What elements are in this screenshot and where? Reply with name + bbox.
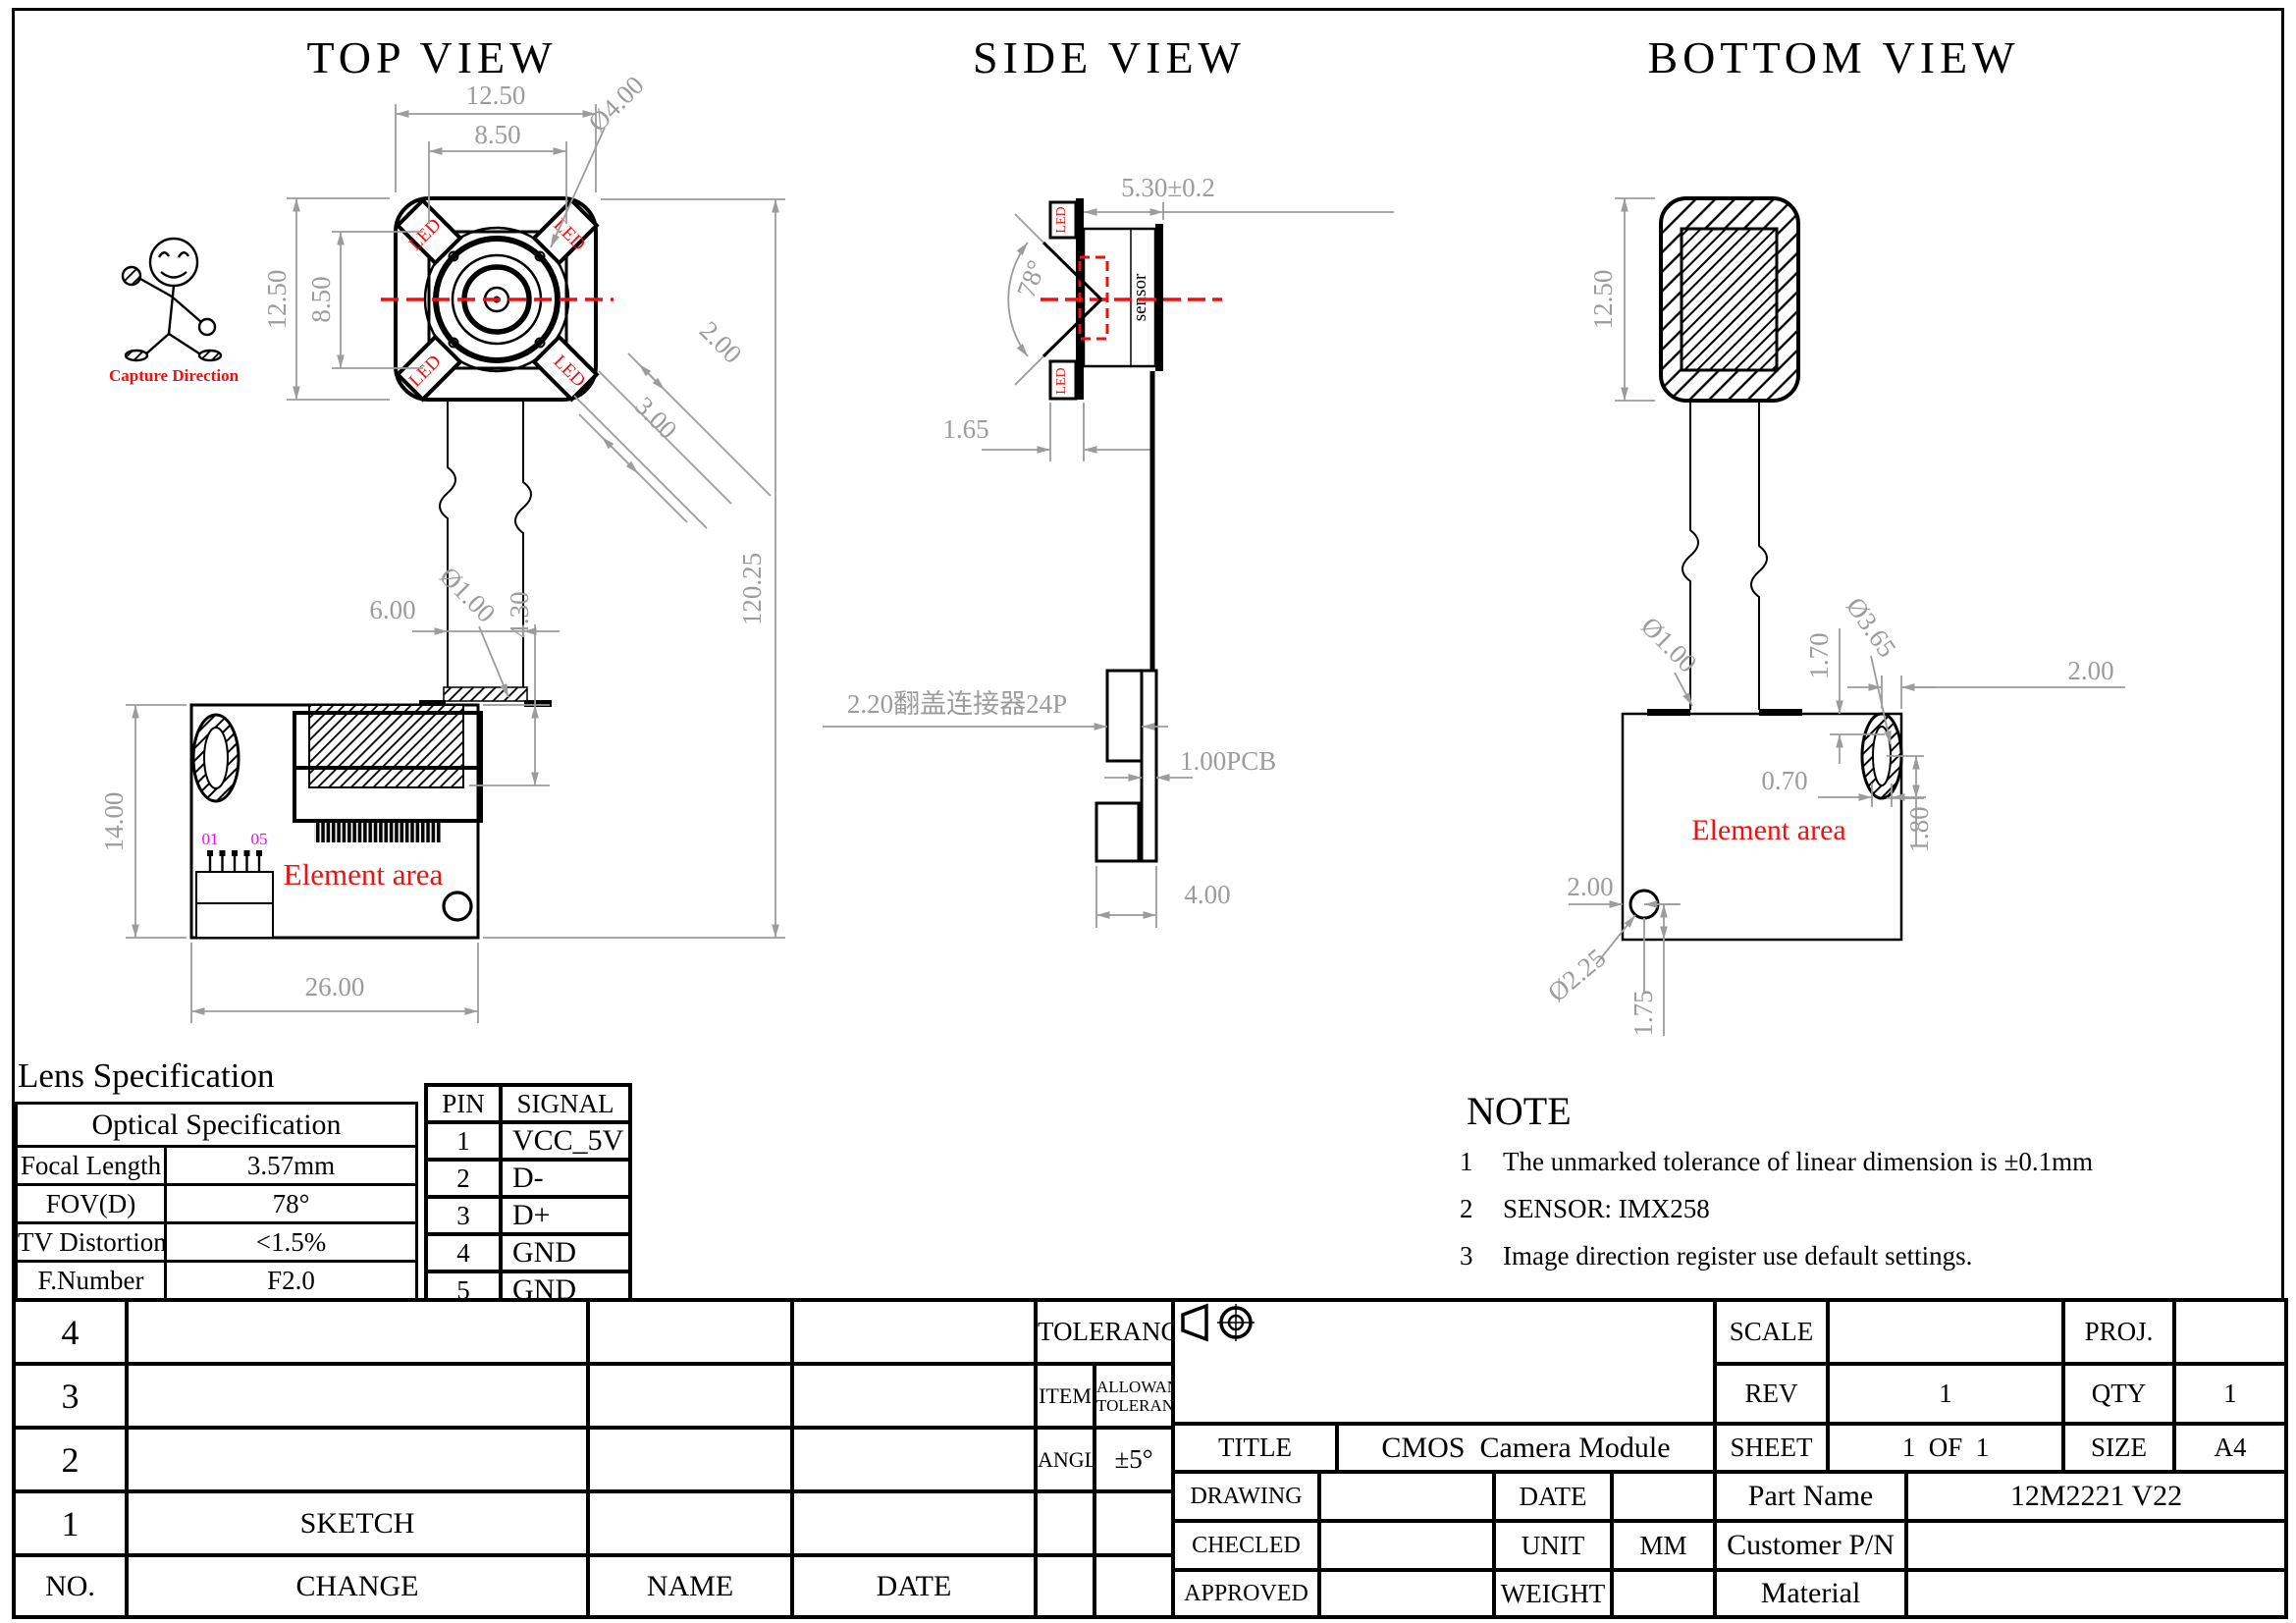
lens-spec-value: 78°: [166, 1185, 417, 1223]
lens-spec-label: Focal Length: [17, 1147, 166, 1185]
weight-label: WEIGHT: [1494, 1570, 1612, 1617]
proj-symbol-cell: [2174, 1300, 2286, 1364]
pin-number: 4: [426, 1234, 501, 1271]
element-area-label-top: Element area: [284, 857, 444, 892]
pin-signal-table: PIN SIGNAL 1VCC_5V 2D- 3D+ 4GND 5GND: [424, 1083, 632, 1311]
top-view-title: TOP VIEW: [306, 32, 557, 82]
pin1-label: 01: [202, 830, 219, 848]
part-name-value: 12M2221 V22: [1906, 1472, 2286, 1521]
pin-signal: VCC_5V: [501, 1122, 630, 1160]
side-view: SIDE VIEW LED LED sensor 78° 5.30±0.2: [823, 32, 1394, 928]
rev-no-2: 2: [14, 1428, 127, 1491]
note-number: 1: [1460, 1147, 1503, 1177]
allowance-line1: ALLOWANCE: [1096, 1378, 1171, 1396]
lens-spec-table: Optical Specification Focal Length 3.57m…: [15, 1102, 418, 1301]
date-label: DATE: [1494, 1472, 1612, 1521]
dim-connector-type: 2.20翻盖连接器24P: [847, 689, 1067, 719]
note-item-2: 2SENSOR: IMX258: [1460, 1194, 1710, 1224]
material-label: Material: [1715, 1570, 1906, 1617]
qty-label: QTY: [2063, 1364, 2174, 1424]
dim-hole2-bottom-offset: 1.75: [1629, 990, 1658, 1036]
dim-pcb-height: 14.00: [99, 792, 129, 852]
dim-connector-width: 4.00: [1184, 880, 1230, 909]
tolerance-item-header: ITEM: [1036, 1364, 1095, 1428]
dim-cable-thickness: Ø1.00: [434, 561, 501, 627]
dim-slot-width: 0.70: [1761, 766, 1807, 795]
note-text: The unmarked tolerance of linear dimensi…: [1503, 1147, 2093, 1176]
revision-table: 4 3 2 1SKETCH NO. CHANGE NAME DATE: [12, 1298, 1038, 1619]
note-text: SENSOR: IMX258: [1503, 1194, 1710, 1223]
dim-total-length: 120.25: [737, 553, 767, 625]
dim-body-height-bottom: 12.50: [1588, 270, 1618, 330]
rev-footer-no: NO.: [14, 1555, 127, 1617]
element-area-label-bottom: Element area: [1691, 814, 1845, 846]
dim-slot-height: 1.80: [1904, 806, 1934, 852]
signal-header: SIGNAL: [501, 1085, 630, 1122]
dim-body-height: 12.50: [262, 270, 292, 330]
fpc-fold-hatch: [309, 705, 463, 787]
title-label: TITLE: [1173, 1424, 1337, 1472]
rev-sketch: SKETCH: [127, 1491, 588, 1555]
customer-pn-label: Customer P/N: [1715, 1521, 1906, 1570]
lens-spec-value: <1.5%: [166, 1223, 417, 1262]
fpc-cable-top-view: [440, 400, 531, 699]
connector-side-view: [1096, 671, 1156, 861]
allowance-line2: TOLERANCE: [1096, 1396, 1171, 1415]
lens-spec-label: FOV(D): [17, 1185, 166, 1223]
dim-lens-dia: Ø4.00: [582, 70, 649, 136]
rev-label: REV: [1715, 1364, 1828, 1424]
rev-value: 1: [1828, 1364, 2063, 1424]
capture-direction-label: Capture Direction: [109, 366, 240, 385]
top-view: TOP VIEW Capture Direction: [99, 32, 785, 1023]
tolerance-title: TOLERANCE: [1036, 1300, 1173, 1364]
tolerance-angle-value: ±5°: [1095, 1428, 1173, 1491]
rev-no-1: 1: [14, 1491, 127, 1555]
rev-footer-change: CHANGE: [127, 1555, 588, 1617]
engineering-drawing-page: TOP VIEW Capture Direction: [0, 0, 2296, 1623]
rev-no-4: 4: [14, 1300, 127, 1364]
size-value: A4: [2174, 1424, 2286, 1472]
dim-fov-angle: 78°: [1011, 256, 1051, 301]
tolerance-table: TOLERANCE ITEM ALLOWANCE TOLERANCE ANGLE…: [1034, 1298, 1175, 1619]
tolerance-angle-label: ANGLE: [1036, 1428, 1095, 1491]
rev-footer-name: NAME: [588, 1555, 792, 1617]
connector-pins: [314, 821, 441, 842]
dim-face-width: 8.50: [474, 120, 520, 149]
dim-cable-width: 6.00: [369, 595, 415, 624]
side-view-title: SIDE VIEW: [973, 32, 1246, 82]
dim-pcb-thickness: 1.00PCB: [1180, 746, 1276, 776]
pin-signal: D-: [501, 1160, 630, 1197]
pin-header: PIN: [426, 1085, 501, 1122]
pin-number: 3: [426, 1197, 501, 1234]
approved-label: APPROVED: [1173, 1570, 1319, 1617]
sheet-value: 1 OF 1: [1828, 1424, 2063, 1472]
dim-hole-top-offset: 1.70: [1804, 632, 1834, 678]
note-title: NOTE: [1467, 1088, 1572, 1134]
led-label-side-top: LED: [1054, 206, 1069, 233]
note-text: Image direction register use default set…: [1503, 1241, 1972, 1271]
pin-number: 2: [426, 1160, 501, 1197]
sensor-window-bottom: [1682, 229, 1777, 370]
pin-number: 1: [426, 1122, 501, 1160]
dim-led-width: 2.00: [694, 315, 748, 369]
part-name-label: Part Name: [1715, 1472, 1906, 1521]
checked-label: CHECLED: [1173, 1521, 1319, 1570]
rev-footer-date: DATE: [792, 1555, 1036, 1617]
qty-value: 1: [2174, 1364, 2286, 1424]
dim-cable-thickness-bottom: Ø1.00: [1635, 611, 1702, 677]
customer-pn-value: [1906, 1521, 2286, 1570]
lens-spec-value: F2.0: [166, 1262, 417, 1300]
pcb-top-view: 01 05 Element area: [191, 700, 552, 938]
tolerance-allowance-header: ALLOWANCE TOLERANCE: [1095, 1364, 1173, 1428]
pin-signal: D+: [501, 1197, 630, 1234]
note-item-3: 3Image direction register use default se…: [1460, 1241, 1972, 1271]
pin5-label: 05: [251, 830, 268, 848]
proj-label: PROJ.: [2063, 1300, 2174, 1364]
lens-spec-label: TV Distortion: [17, 1223, 166, 1262]
title-block-lower: DRAWING DATE Part Name 12M2221 V22 CHECL…: [1171, 1470, 2288, 1619]
scale-value: [1828, 1300, 2063, 1364]
lens-spec-value: 3.57mm: [166, 1147, 417, 1185]
capture-direction-figure: [123, 239, 221, 360]
dim-hole2-left-offset: 2.00: [1567, 872, 1613, 901]
scale-label: SCALE: [1715, 1300, 1828, 1364]
dim-pcb-width: 26.00: [305, 972, 365, 1001]
pin-signal: GND: [501, 1234, 630, 1271]
sensor-label: sensor: [1130, 273, 1150, 321]
dim-connector-height: 4.30: [505, 591, 534, 637]
size-label: SIZE: [2063, 1424, 2174, 1472]
dim-body-width: 12.50: [466, 81, 526, 110]
unit-value: MM: [1612, 1521, 1715, 1570]
led-label-side-bottom: LED: [1054, 367, 1069, 394]
bottom-view: BOTTOM VIEW 12.50 Element area Ø1.00: [1542, 32, 2125, 1037]
note-number: 3: [1460, 1241, 1503, 1271]
dim-hole-right-offset: 2.00: [2067, 656, 2113, 685]
rev-no-3: 3: [14, 1364, 127, 1428]
sheet-label: SHEET: [1715, 1424, 1828, 1472]
dim-slot-dia: Ø3.65: [1841, 592, 1902, 663]
drawing-label: DRAWING: [1173, 1472, 1319, 1521]
title-value: CMOS Camera Module: [1337, 1424, 1715, 1472]
lens-spec-heading: Lens Specification: [18, 1056, 274, 1096]
lens-spec-header: Optical Specification: [17, 1104, 417, 1147]
sensor-board-side: [1155, 224, 1163, 371]
bottom-view-title: BOTTOM VIEW: [1647, 32, 2019, 82]
dim-face-height: 8.50: [306, 276, 336, 322]
unit-label: UNIT: [1494, 1521, 1612, 1570]
dim-module-height: 5.30±0.2: [1121, 173, 1215, 202]
dim-led-thickness: 1.65: [942, 414, 988, 444]
note-number: 2: [1460, 1194, 1503, 1224]
note-item-1: 1The unmarked tolerance of linear dimens…: [1460, 1147, 2093, 1177]
dim-hole2-dia: Ø2.25: [1542, 943, 1611, 1007]
material-value: [1906, 1570, 2286, 1617]
lens-spec-label: F.Number: [17, 1262, 166, 1300]
title-block-upper: SCALE PROJ. REV 1 QTY 1 TITLE CMOS Camer…: [1171, 1298, 2288, 1474]
